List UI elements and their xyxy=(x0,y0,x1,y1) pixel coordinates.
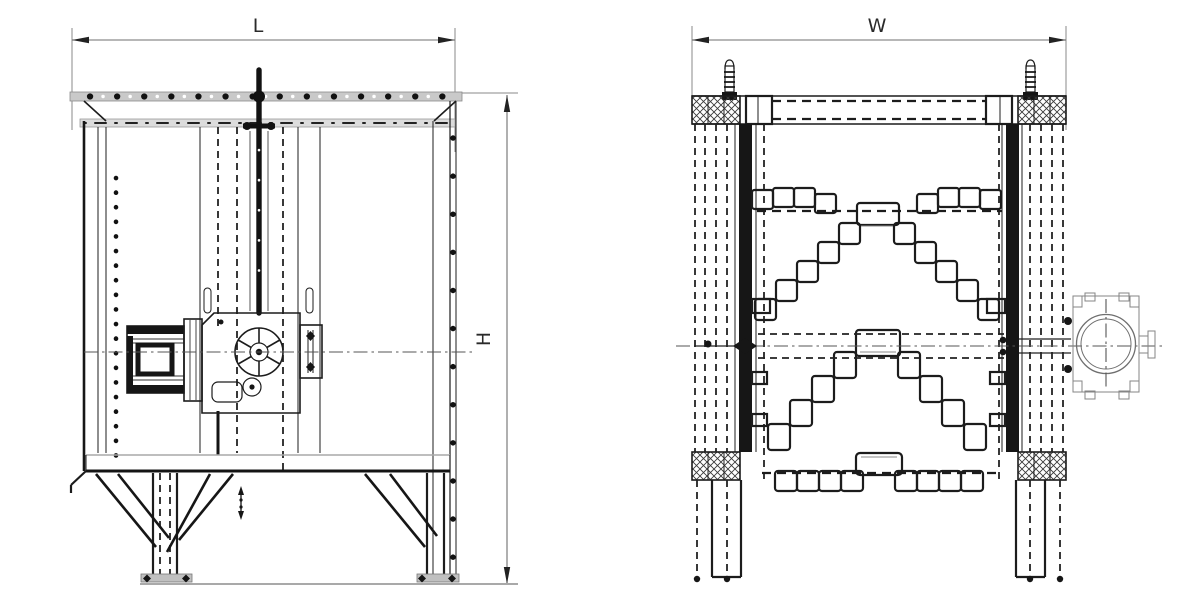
diagonal-braces xyxy=(96,474,437,552)
arrowhead-right-icon xyxy=(1049,37,1066,43)
ribbon-flights-upper xyxy=(752,188,1002,320)
eyebolt-left xyxy=(722,60,737,100)
ribbon-flights-bottom xyxy=(762,453,1002,491)
front-view: L H xyxy=(70,15,518,584)
side-legs xyxy=(694,480,1063,582)
width-dimension-label: W xyxy=(868,15,887,37)
dimension-H: H xyxy=(458,93,518,584)
ribbon-flights-pyramid xyxy=(768,330,986,450)
length-dimension-label: L xyxy=(253,15,264,37)
drive-motor xyxy=(127,319,202,401)
motor-window xyxy=(138,345,172,374)
dimension-W: W xyxy=(692,15,1066,130)
bolt-slot xyxy=(306,288,313,313)
corner-chamfer xyxy=(434,101,456,121)
shaft-stub xyxy=(1139,336,1148,353)
arrowhead-left-icon xyxy=(72,37,89,43)
arrowhead-down-icon xyxy=(504,567,510,584)
top-flange-rails xyxy=(70,91,462,128)
arrowhead-up-icon xyxy=(504,95,510,112)
arrowhead-right-icon xyxy=(438,37,455,43)
foot-pads xyxy=(141,574,459,583)
arrowhead-left-icon xyxy=(692,37,709,43)
height-dimension-label: H xyxy=(473,332,495,346)
agitator-shaft xyxy=(243,70,275,313)
corner-chamfer xyxy=(84,101,106,121)
motor-flange xyxy=(184,319,202,401)
level-mark xyxy=(238,486,244,520)
side-view: W xyxy=(676,15,1162,582)
dimension-L: L xyxy=(72,15,455,152)
right-leg xyxy=(427,473,444,575)
gearbox xyxy=(202,313,322,413)
top-beam xyxy=(692,96,1066,124)
bolt-slot xyxy=(204,288,211,313)
lifting-eyebolts xyxy=(722,60,1038,100)
eyebolt-right xyxy=(1023,60,1038,100)
two-view-machine-drawing: L H xyxy=(0,0,1187,606)
technical-drawing-canvas: L H xyxy=(0,0,1187,606)
left-post xyxy=(695,124,770,480)
